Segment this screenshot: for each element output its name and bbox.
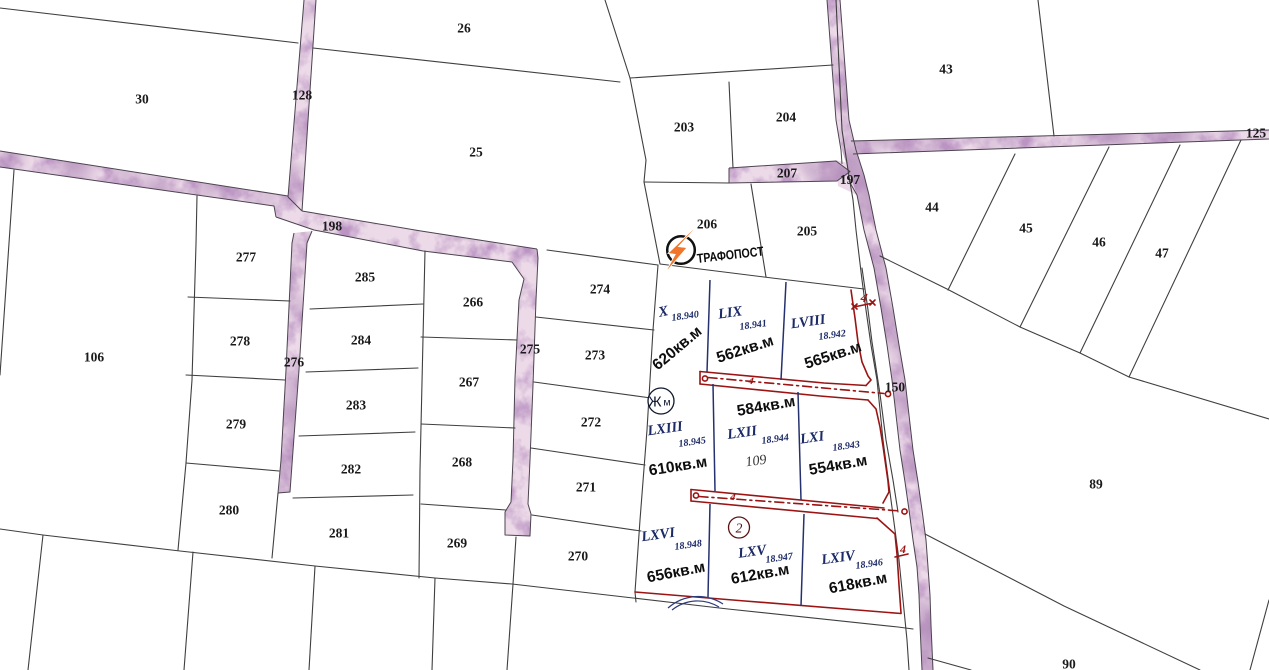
svg-text:128: 128 (292, 88, 313, 103)
svg-text:205: 205 (797, 224, 818, 239)
svg-text:198: 198 (322, 219, 343, 234)
svg-text:207: 207 (777, 166, 798, 181)
svg-text:2: 2 (736, 521, 743, 536)
svg-text:278: 278 (230, 334, 251, 349)
svg-text:89: 89 (1089, 477, 1103, 492)
svg-text:271: 271 (576, 480, 597, 495)
svg-text:206: 206 (697, 217, 718, 232)
svg-text:273: 273 (585, 348, 606, 363)
svg-text:268: 268 (452, 455, 473, 470)
svg-text:266: 266 (463, 295, 484, 310)
svg-text:47: 47 (1155, 246, 1169, 261)
svg-text:43: 43 (939, 62, 953, 77)
svg-text:125: 125 (1246, 126, 1267, 141)
svg-text:282: 282 (341, 462, 362, 477)
svg-text:197: 197 (840, 172, 861, 187)
svg-text:267: 267 (459, 375, 480, 390)
svg-text:45: 45 (1019, 221, 1033, 236)
svg-text:25: 25 (469, 145, 483, 160)
svg-text:150: 150 (885, 380, 906, 395)
svg-text:44: 44 (925, 200, 939, 215)
svg-text:274: 274 (590, 282, 611, 297)
svg-text:270: 270 (568, 549, 589, 564)
svg-text:285: 285 (355, 270, 376, 285)
svg-text:275: 275 (520, 342, 541, 357)
svg-text:272: 272 (581, 415, 602, 430)
svg-text:106: 106 (84, 350, 105, 365)
svg-text:279: 279 (226, 417, 247, 432)
svg-text:26: 26 (457, 21, 471, 36)
svg-text:269: 269 (447, 536, 468, 551)
svg-text:281: 281 (329, 526, 350, 541)
svg-text:109: 109 (745, 453, 768, 471)
svg-text:280: 280 (219, 503, 240, 518)
svg-text:м: м (663, 397, 670, 409)
svg-text:204: 204 (776, 110, 797, 125)
svg-text:Ж: Ж (648, 395, 662, 411)
svg-text:30: 30 (135, 92, 149, 107)
svg-text:283: 283 (346, 398, 367, 413)
svg-text:277: 277 (236, 250, 257, 265)
svg-text:284: 284 (351, 333, 372, 348)
svg-text:276: 276 (284, 355, 305, 370)
svg-text:203: 203 (674, 120, 695, 135)
svg-text:46: 46 (1092, 235, 1106, 250)
svg-text:4: 4 (899, 542, 906, 556)
svg-text:90: 90 (1062, 657, 1076, 670)
